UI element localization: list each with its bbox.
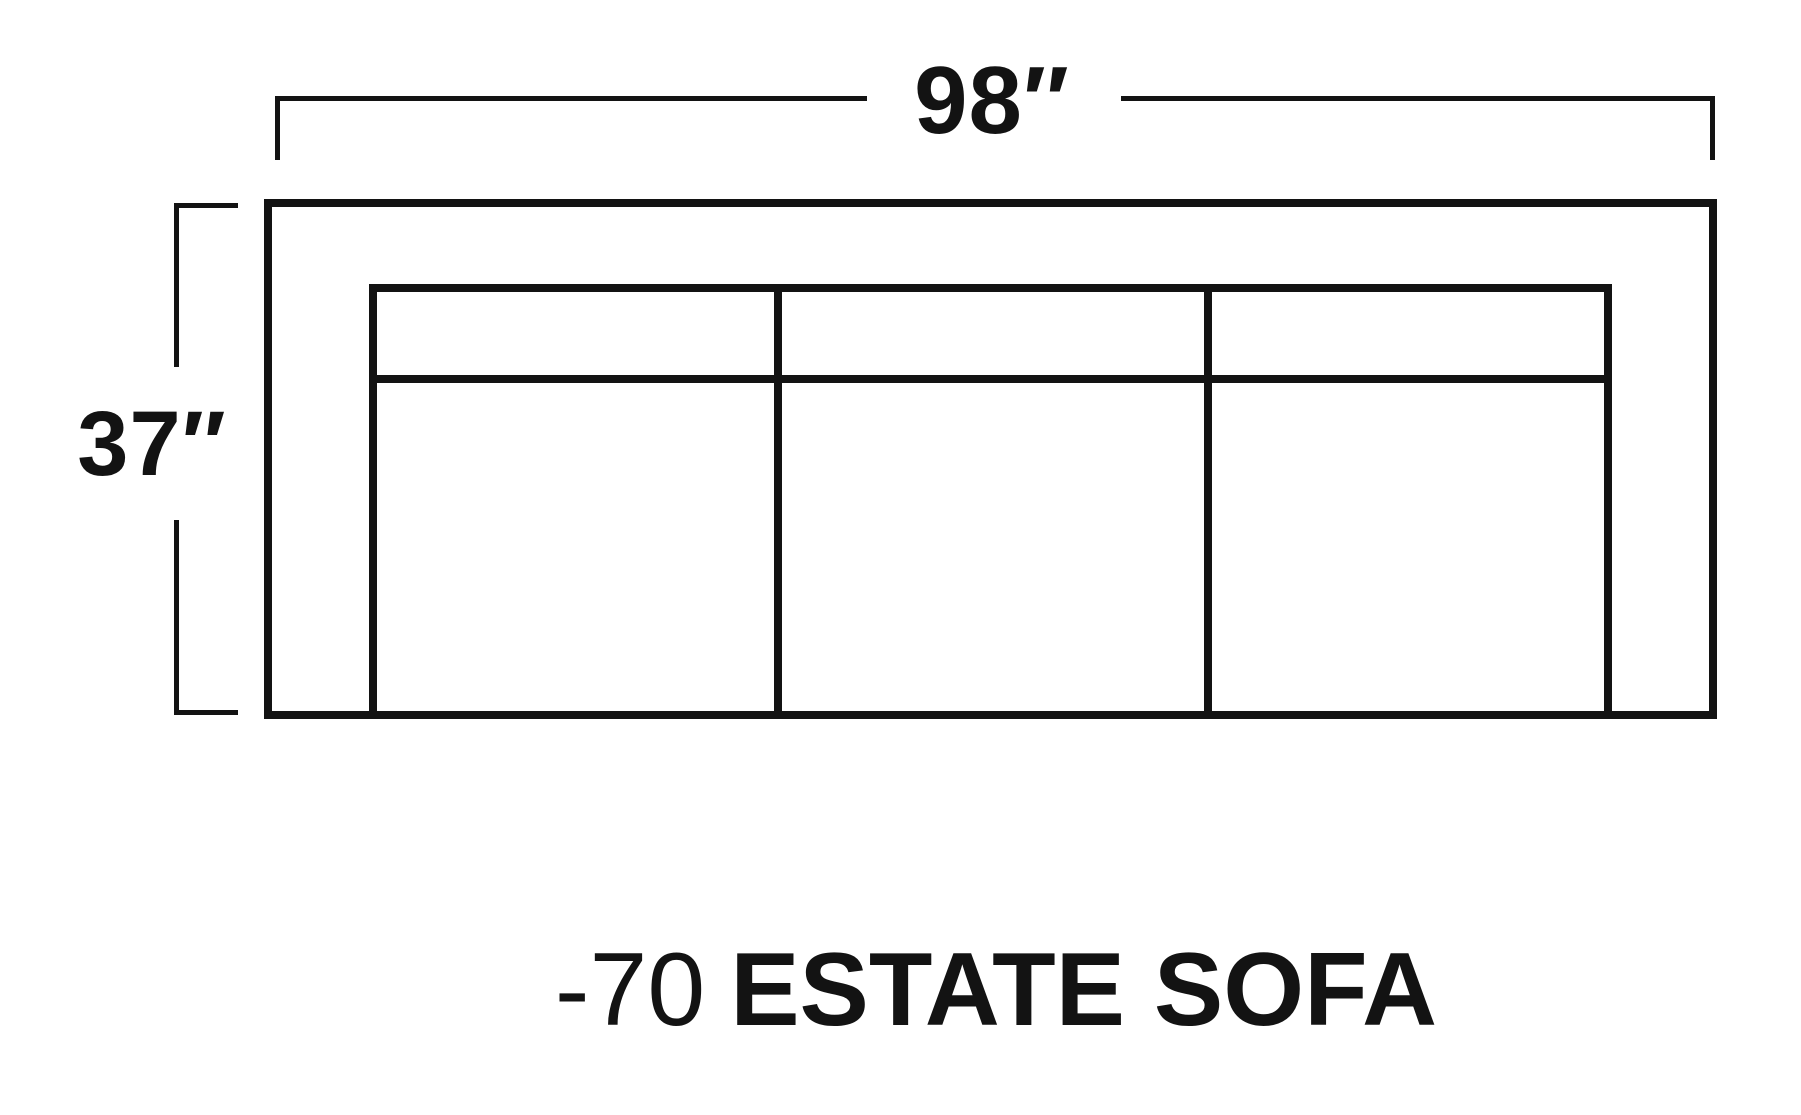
width-dimension-right-end-tick <box>1710 96 1715 160</box>
width-dimension-label: 98″ <box>742 46 1242 156</box>
depth-dimension-line-bottom-segment <box>174 520 179 713</box>
seat-divider-left <box>774 284 782 719</box>
depth-dimension-line-top-segment <box>174 205 179 367</box>
depth-dimension-bottom-end-tick <box>174 710 238 715</box>
caption-product-name: ESTATE SOFA <box>730 932 1437 1048</box>
back-cushion-divider-line <box>369 375 1612 383</box>
depth-dimension-top-end-tick <box>174 203 238 208</box>
width-dimension-left-end-tick <box>275 96 280 160</box>
seat-divider-right <box>1204 284 1212 719</box>
depth-dimension-label: 37″ <box>27 394 277 494</box>
sofa-dimension-diagram: 98″ 37″ -70ESTATE SOFA <box>0 0 1801 1115</box>
caption-model-number: -70 <box>555 932 705 1048</box>
sofa-seat-area-outline <box>369 284 1612 719</box>
caption: -70ESTATE SOFA <box>196 930 1796 1050</box>
